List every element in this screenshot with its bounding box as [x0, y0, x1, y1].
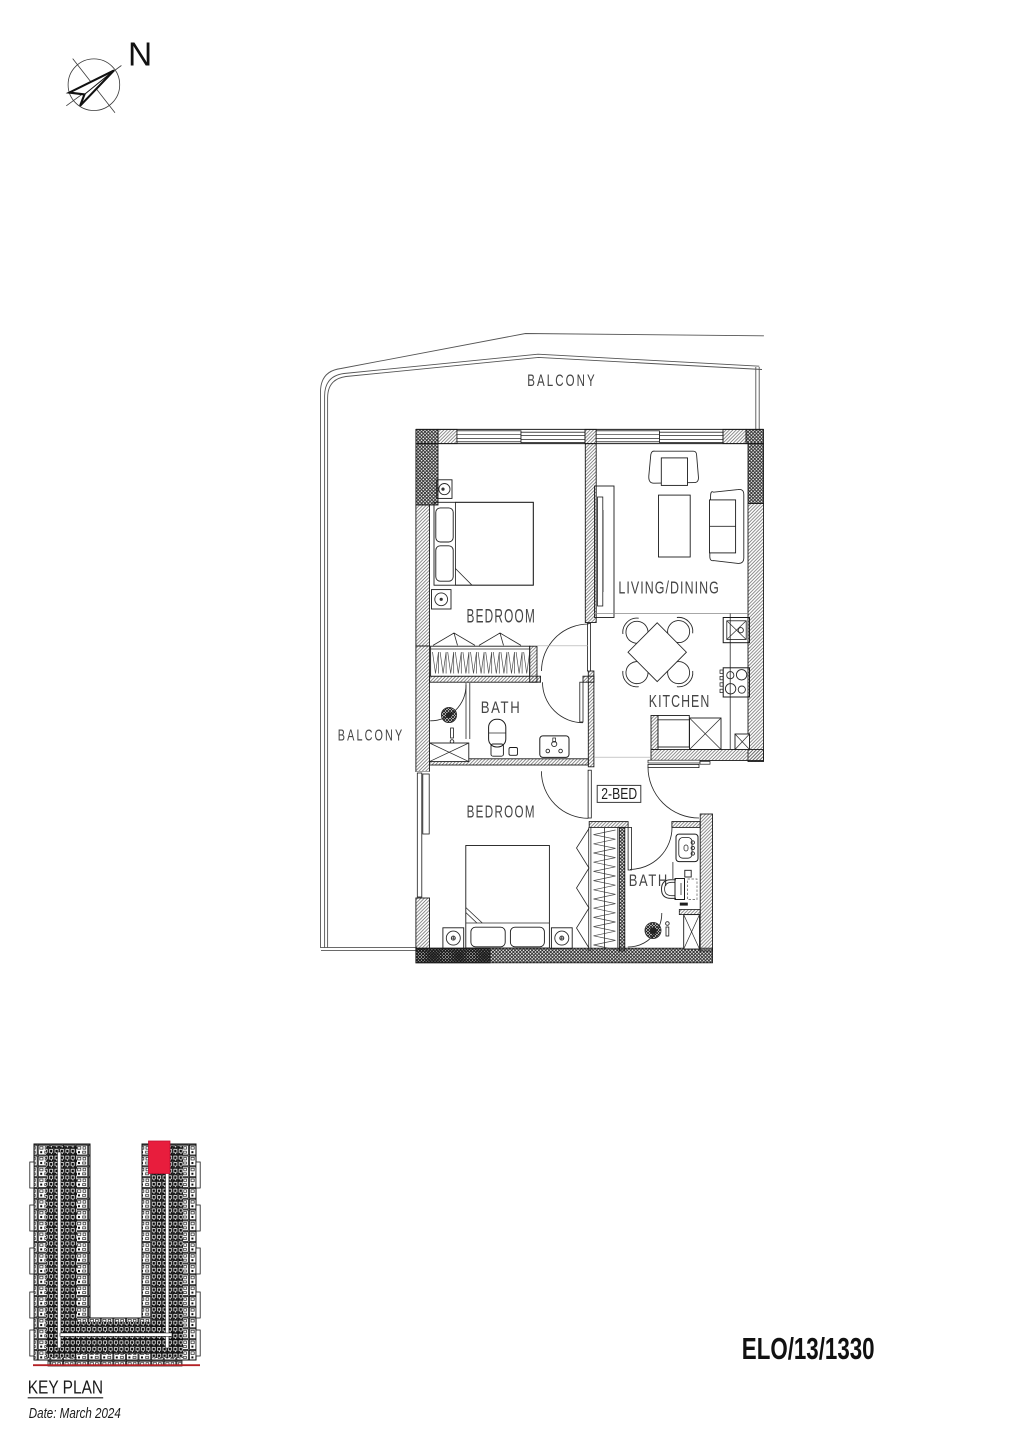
svg-text:BALCONY: BALCONY [527, 371, 597, 390]
svg-text:LIVING/DINING: LIVING/DINING [618, 577, 720, 597]
svg-text:BEDROOM: BEDROOM [467, 606, 537, 627]
svg-text:Date: March 2024: Date: March 2024 [29, 1406, 121, 1422]
svg-text:N: N [128, 37, 152, 74]
svg-text:BATH: BATH [481, 699, 522, 717]
svg-text:BALCONY: BALCONY [338, 728, 405, 745]
svg-text:2-BED: 2-BED [601, 786, 637, 803]
svg-text:BATH: BATH [629, 872, 669, 890]
svg-text:BEDROOM: BEDROOM [467, 802, 536, 822]
svg-text:KITCHEN: KITCHEN [649, 691, 711, 711]
svg-text:ELO/13/1330: ELO/13/1330 [742, 1333, 875, 1366]
svg-text:KEY PLAN: KEY PLAN [28, 1377, 103, 1398]
